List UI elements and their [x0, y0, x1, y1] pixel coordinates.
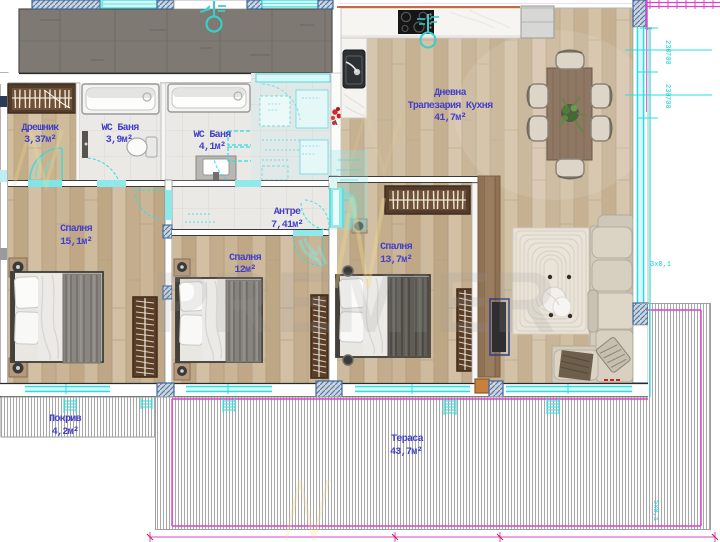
svg-text:3x0,1: 3x0,1 — [650, 261, 671, 269]
svg-text:700: 700 — [663, 96, 671, 109]
svg-text:4,1м²: 4,1м² — [199, 142, 226, 153]
svg-text:230: 230 — [663, 84, 671, 97]
svg-text:5x0,1: 5x0,1 — [651, 500, 659, 521]
svg-text:12м²: 12м² — [234, 265, 255, 276]
svg-text:41,7м²: 41,7м² — [434, 113, 466, 124]
svg-text:WC Баня: WC Баня — [193, 130, 231, 141]
svg-text:Дневна: Дневна — [434, 88, 467, 99]
svg-text:Трапезария Кухня: Трапезария Кухня — [408, 101, 494, 112]
svg-text:Спалня: Спалня — [60, 224, 93, 235]
svg-text:Антре: Антре — [274, 207, 301, 218]
svg-text:Покрив: Покрив — [49, 414, 82, 425]
svg-text:Спалня: Спалня — [229, 253, 262, 264]
svg-text:7,41м²: 7,41м² — [271, 220, 303, 231]
svg-text:PREMIER: PREMIER — [152, 255, 558, 351]
svg-text:3,37м²: 3,37м² — [24, 135, 56, 146]
svg-text:230: 230 — [663, 40, 671, 53]
svg-text:4,2м²: 4,2м² — [52, 427, 79, 438]
svg-text:Тераса: Тераса — [391, 434, 424, 445]
svg-text:13,7м²: 13,7м² — [380, 255, 412, 266]
svg-text:43,7м²: 43,7м² — [390, 447, 422, 458]
svg-text:15,1м²: 15,1м² — [60, 237, 92, 248]
svg-text:Спалня: Спалня — [380, 242, 413, 253]
svg-text:3,9м²: 3,9м² — [106, 135, 133, 146]
svg-text:WC Баня: WC Баня — [101, 123, 139, 134]
svg-text:700: 700 — [663, 52, 671, 65]
svg-text:Дрешник: Дрешник — [21, 123, 59, 134]
